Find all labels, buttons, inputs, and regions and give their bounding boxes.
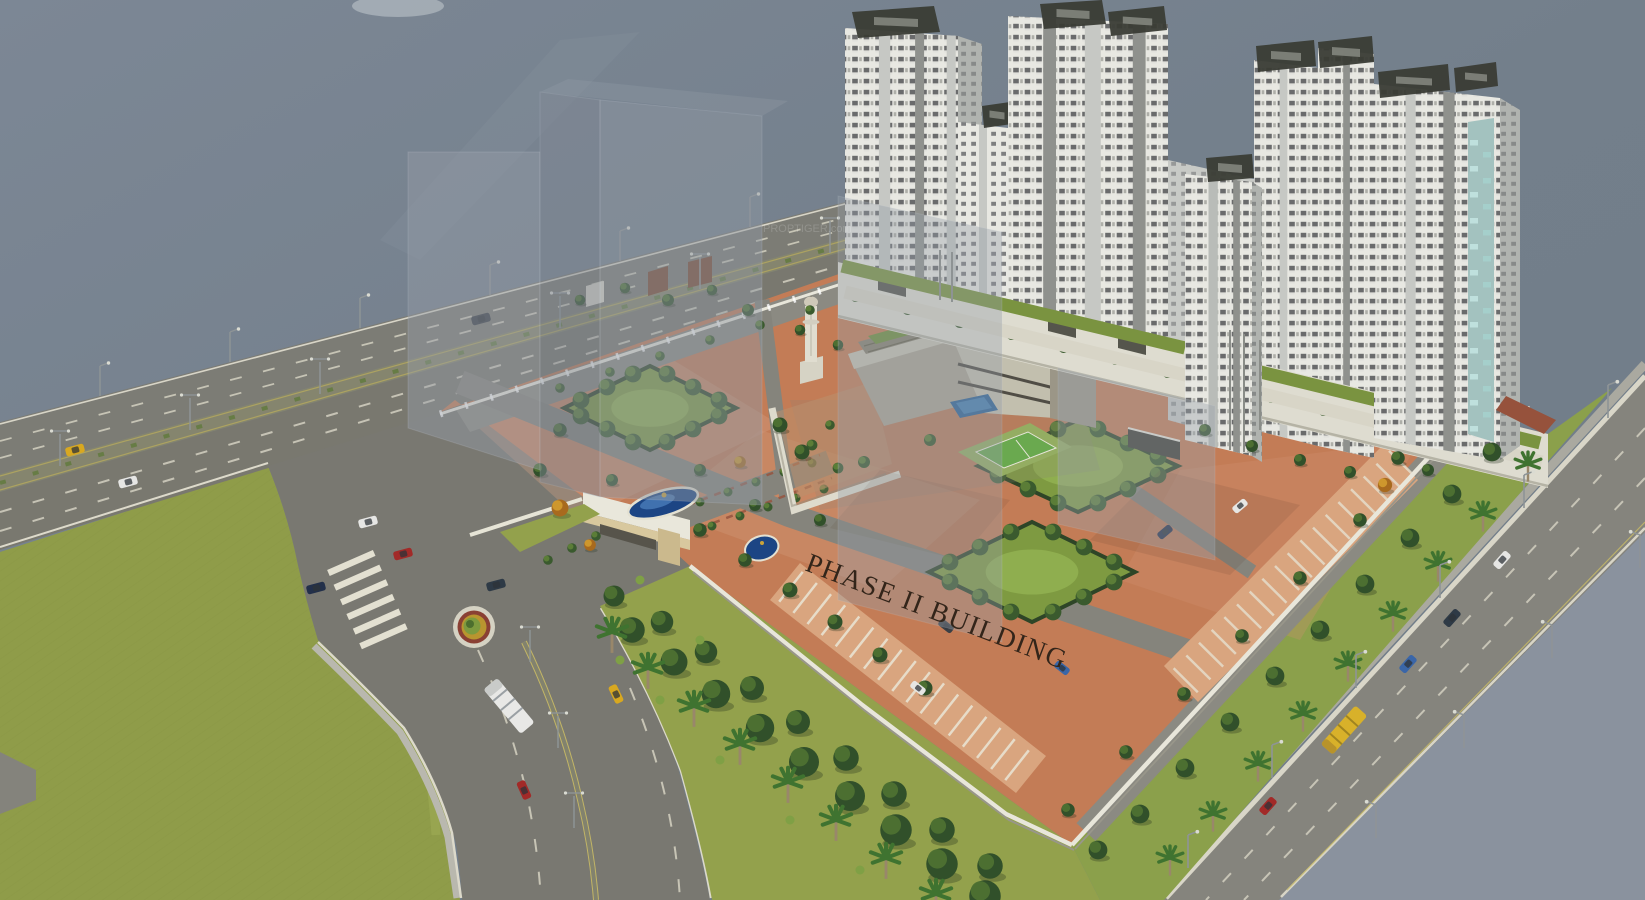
svg-text:PROPTIGER.com: PROPTIGER.com	[763, 223, 852, 235]
